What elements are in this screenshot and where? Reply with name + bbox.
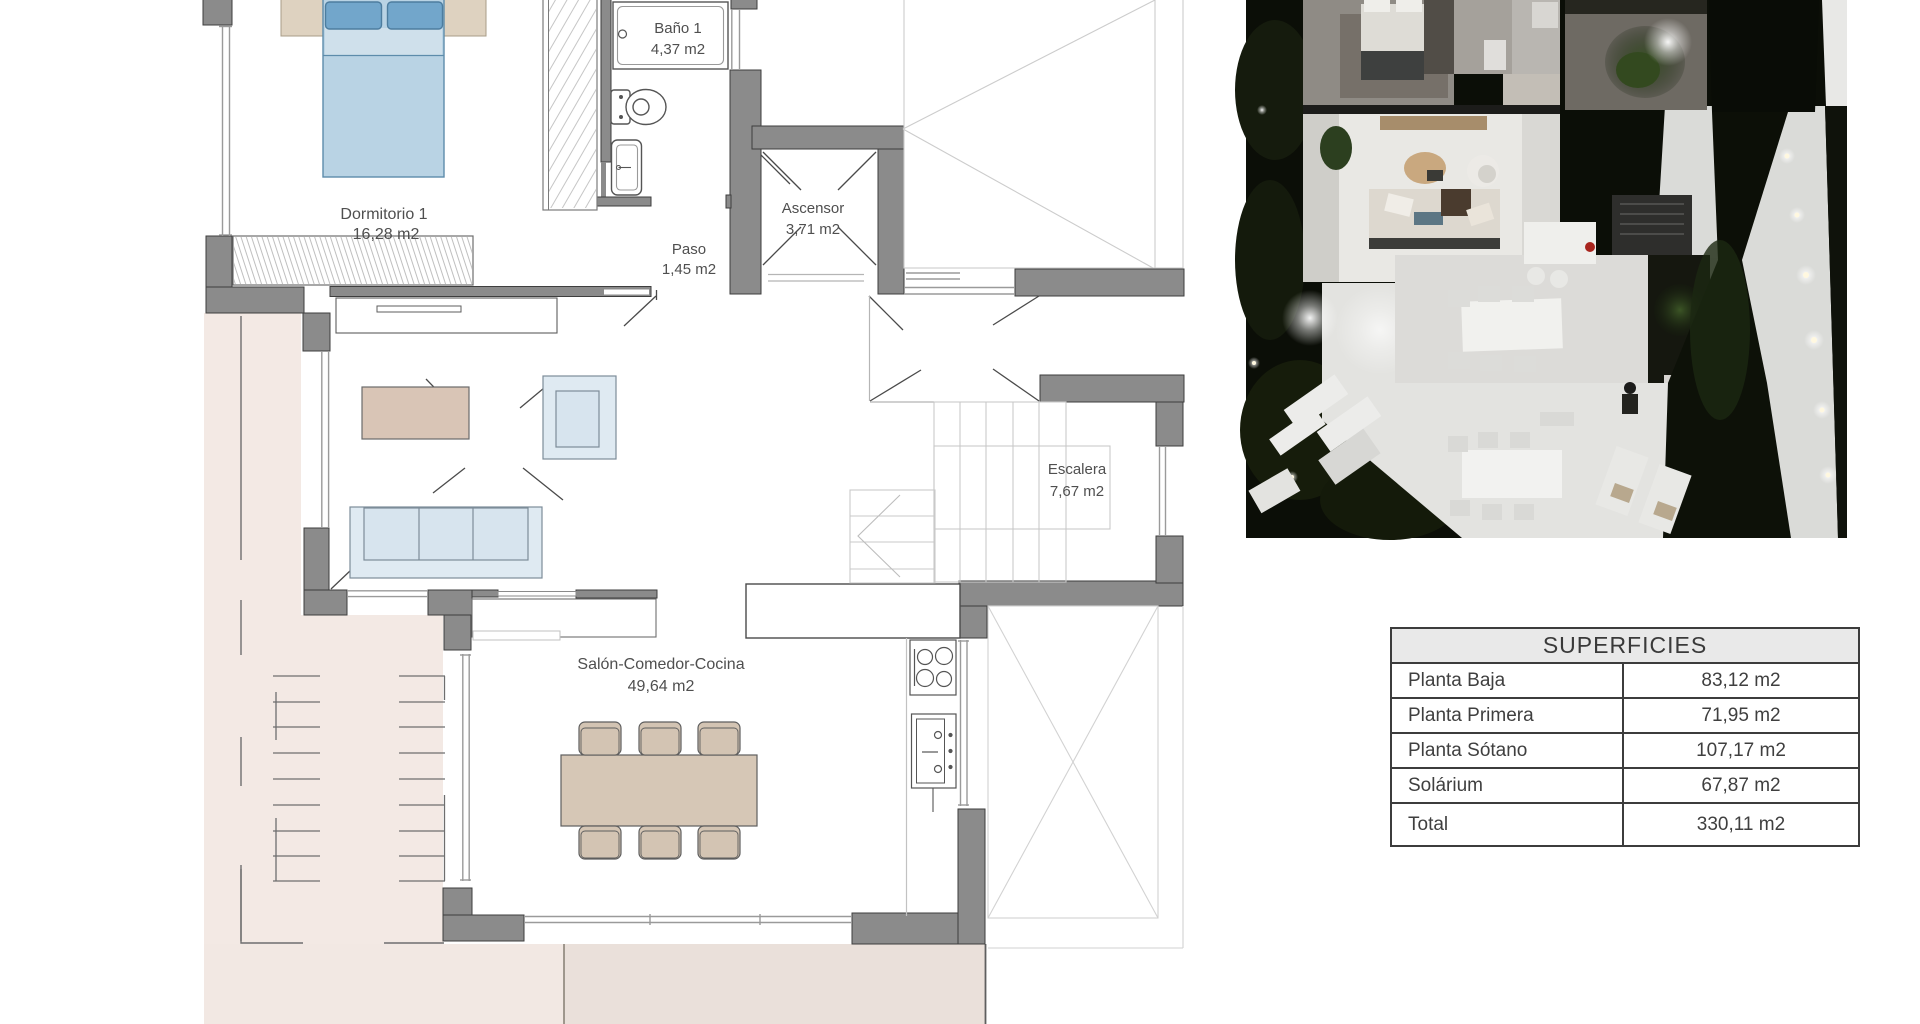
svg-text:49,64 m2: 49,64 m2	[628, 678, 695, 695]
svg-text:7,67 m2: 7,67 m2	[1050, 483, 1104, 500]
svg-text:1,45 m2: 1,45 m2	[662, 261, 716, 278]
svg-text:Paso: Paso	[672, 241, 706, 258]
svg-text:3,71 m2: 3,71 m2	[786, 221, 840, 238]
svg-text:Dormitorio 1: Dormitorio 1	[340, 206, 427, 223]
svg-text:Escalera: Escalera	[1048, 461, 1107, 478]
svg-text:16,28 m2: 16,28 m2	[353, 226, 420, 243]
svg-text:Salón-Comedor-Cocina: Salón-Comedor-Cocina	[577, 656, 744, 673]
svg-text:4,37 m2: 4,37 m2	[651, 41, 705, 58]
svg-text:Baño 1: Baño 1	[654, 20, 702, 37]
svg-text:Ascensor: Ascensor	[782, 200, 845, 217]
